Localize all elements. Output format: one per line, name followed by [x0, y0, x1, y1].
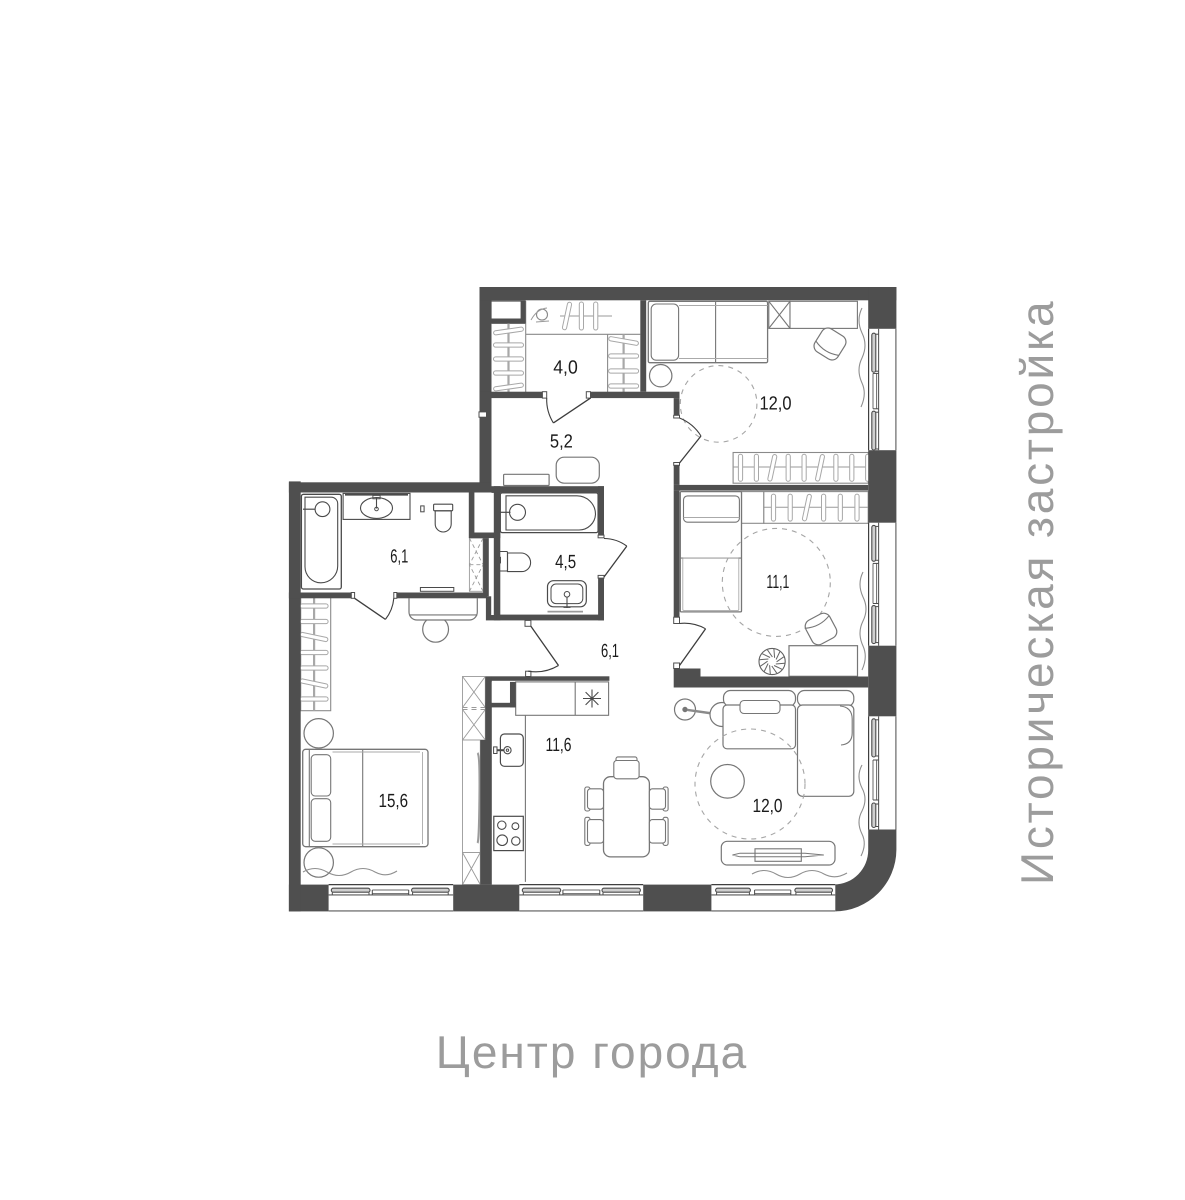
svg-text:6,1: 6,1 — [601, 641, 619, 662]
svg-text:11,6: 11,6 — [546, 735, 572, 756]
svg-text:12,0: 12,0 — [753, 796, 783, 817]
svg-text:11,1: 11,1 — [766, 572, 789, 593]
svg-text:Историческая застройка: Историческая застройка — [1011, 299, 1063, 885]
svg-text:15,6: 15,6 — [379, 791, 409, 812]
svg-text:5,2: 5,2 — [550, 431, 573, 452]
svg-text:Центр города: Центр города — [436, 1026, 748, 1078]
svg-text:4,0: 4,0 — [553, 358, 578, 379]
svg-text:6,1: 6,1 — [390, 547, 408, 568]
svg-text:4,5: 4,5 — [555, 552, 576, 573]
svg-text:12,0: 12,0 — [760, 394, 792, 415]
